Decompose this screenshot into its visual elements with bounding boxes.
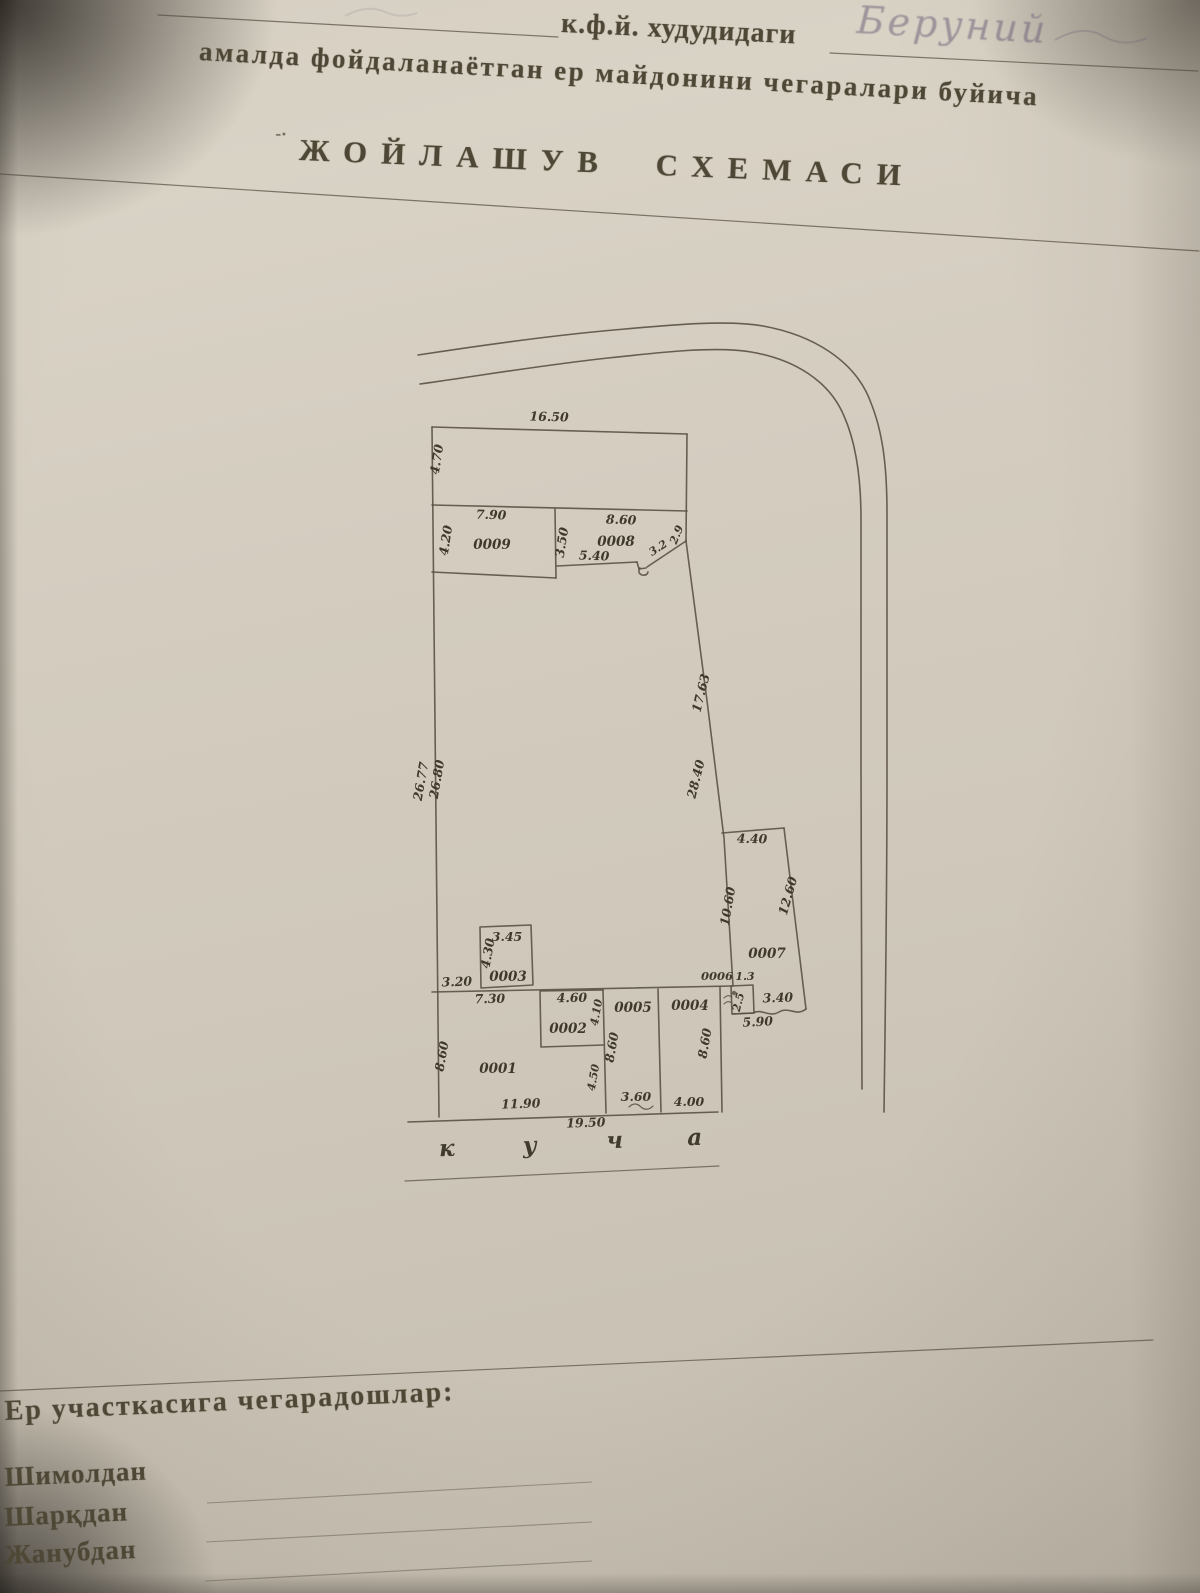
parcel-label-0003: 0003 <box>489 969 527 985</box>
footer-blank-line-north <box>207 1482 592 1503</box>
dim-top-strip-height: 4.70 <box>427 443 447 476</box>
dim-p1-bottom: 11.90 <box>501 1095 541 1111</box>
road-inner-line <box>420 350 862 1089</box>
dim-p6-side: 2.5 <box>730 991 747 1014</box>
dim-p5-bottom: 3.60 <box>621 1089 652 1104</box>
header-blank-underline <box>158 15 558 37</box>
handwriting-faint-top <box>345 9 417 16</box>
parcel-0005-0004-divider <box>658 989 661 1112</box>
dim-p2-side: 4.10 <box>588 998 606 1027</box>
parcel-label-0008: 0008 <box>597 534 635 550</box>
baseline-street-edge <box>408 1112 718 1122</box>
dim-p4-bottom: 4.00 <box>674 1094 705 1109</box>
dim-p7-bottom-total: 5.90 <box>742 1013 773 1030</box>
strip-separator-line <box>432 505 687 511</box>
dim-p1-top: 7.30 <box>475 991 506 1007</box>
street-letter-k: к <box>438 1135 455 1163</box>
dim-p2-top: 4.60 <box>557 990 588 1006</box>
parcel-label-0005: 0005 <box>614 1000 652 1016</box>
dim-p8-width: 8.60 <box>606 511 637 527</box>
dim-p1-left: 8.60 <box>432 1040 452 1073</box>
dim-bottom-total: 19.50 <box>566 1114 606 1130</box>
handwriting-flourish <box>1055 31 1147 43</box>
site-plan-drawing: 16.50 4.70 7.90 4.20 3.50 8.60 5.40 3.2 … <box>0 0 1200 1593</box>
street-underline <box>405 1166 719 1181</box>
parcel-label-0007: 0007 <box>748 946 786 962</box>
street-letter-a: а <box>687 1124 703 1152</box>
parcel-label-0006: 0006 <box>701 969 733 983</box>
dim-p7-bottom-right: 3.40 <box>762 989 793 1005</box>
dim-p7-right: 12.60 <box>775 875 800 917</box>
dim-p3-offset: 3.20 <box>441 973 472 989</box>
dim-p9-height: 4.20 <box>436 524 456 557</box>
boundary-right-upper <box>686 434 687 541</box>
parcel-0004-right-edge <box>720 987 722 1112</box>
dim-p2-below: 4.50 <box>585 1063 603 1092</box>
parcel-label-0009: 0009 <box>473 537 511 553</box>
street-letter-ch: ч <box>606 1127 623 1155</box>
footer-blank-line-east <box>206 1522 592 1542</box>
parcel-0008-step <box>637 562 646 569</box>
footer-separator-line <box>0 1340 1153 1391</box>
parcel-label-0001: 0001 <box>479 1061 517 1077</box>
dim-top-width: 16.50 <box>529 408 569 424</box>
street-letter-u: у <box>521 1132 538 1160</box>
dim-p6-top: 1.3 <box>735 970 754 983</box>
dim-p7-top: 4.40 <box>737 831 768 847</box>
dim-p9-width: 7.90 <box>476 506 507 522</box>
dim-right-lower: 28.40 <box>683 758 707 801</box>
title-separator-line <box>0 174 1199 251</box>
parcel-label-0002: 0002 <box>549 1021 587 1037</box>
dim-p7-left: 10.60 <box>717 885 739 926</box>
boundary-top <box>432 427 687 434</box>
dim-right-upper: 17.63 <box>689 672 713 714</box>
parcel-label-0004: 0004 <box>671 998 709 1014</box>
handwriting-underline <box>830 53 1198 71</box>
photographed-document-page: к.ф.й. худудидаги Беруний амалда фойдала… <box>0 0 1200 1593</box>
footer-blank-line-south <box>205 1561 592 1581</box>
parcel-0007-right-edge <box>784 828 806 1009</box>
dim-p4-side: 8.60 <box>695 1027 715 1060</box>
wave-mark-under-360 <box>629 1104 653 1109</box>
parcel-0009-bottom-edge <box>432 572 556 578</box>
